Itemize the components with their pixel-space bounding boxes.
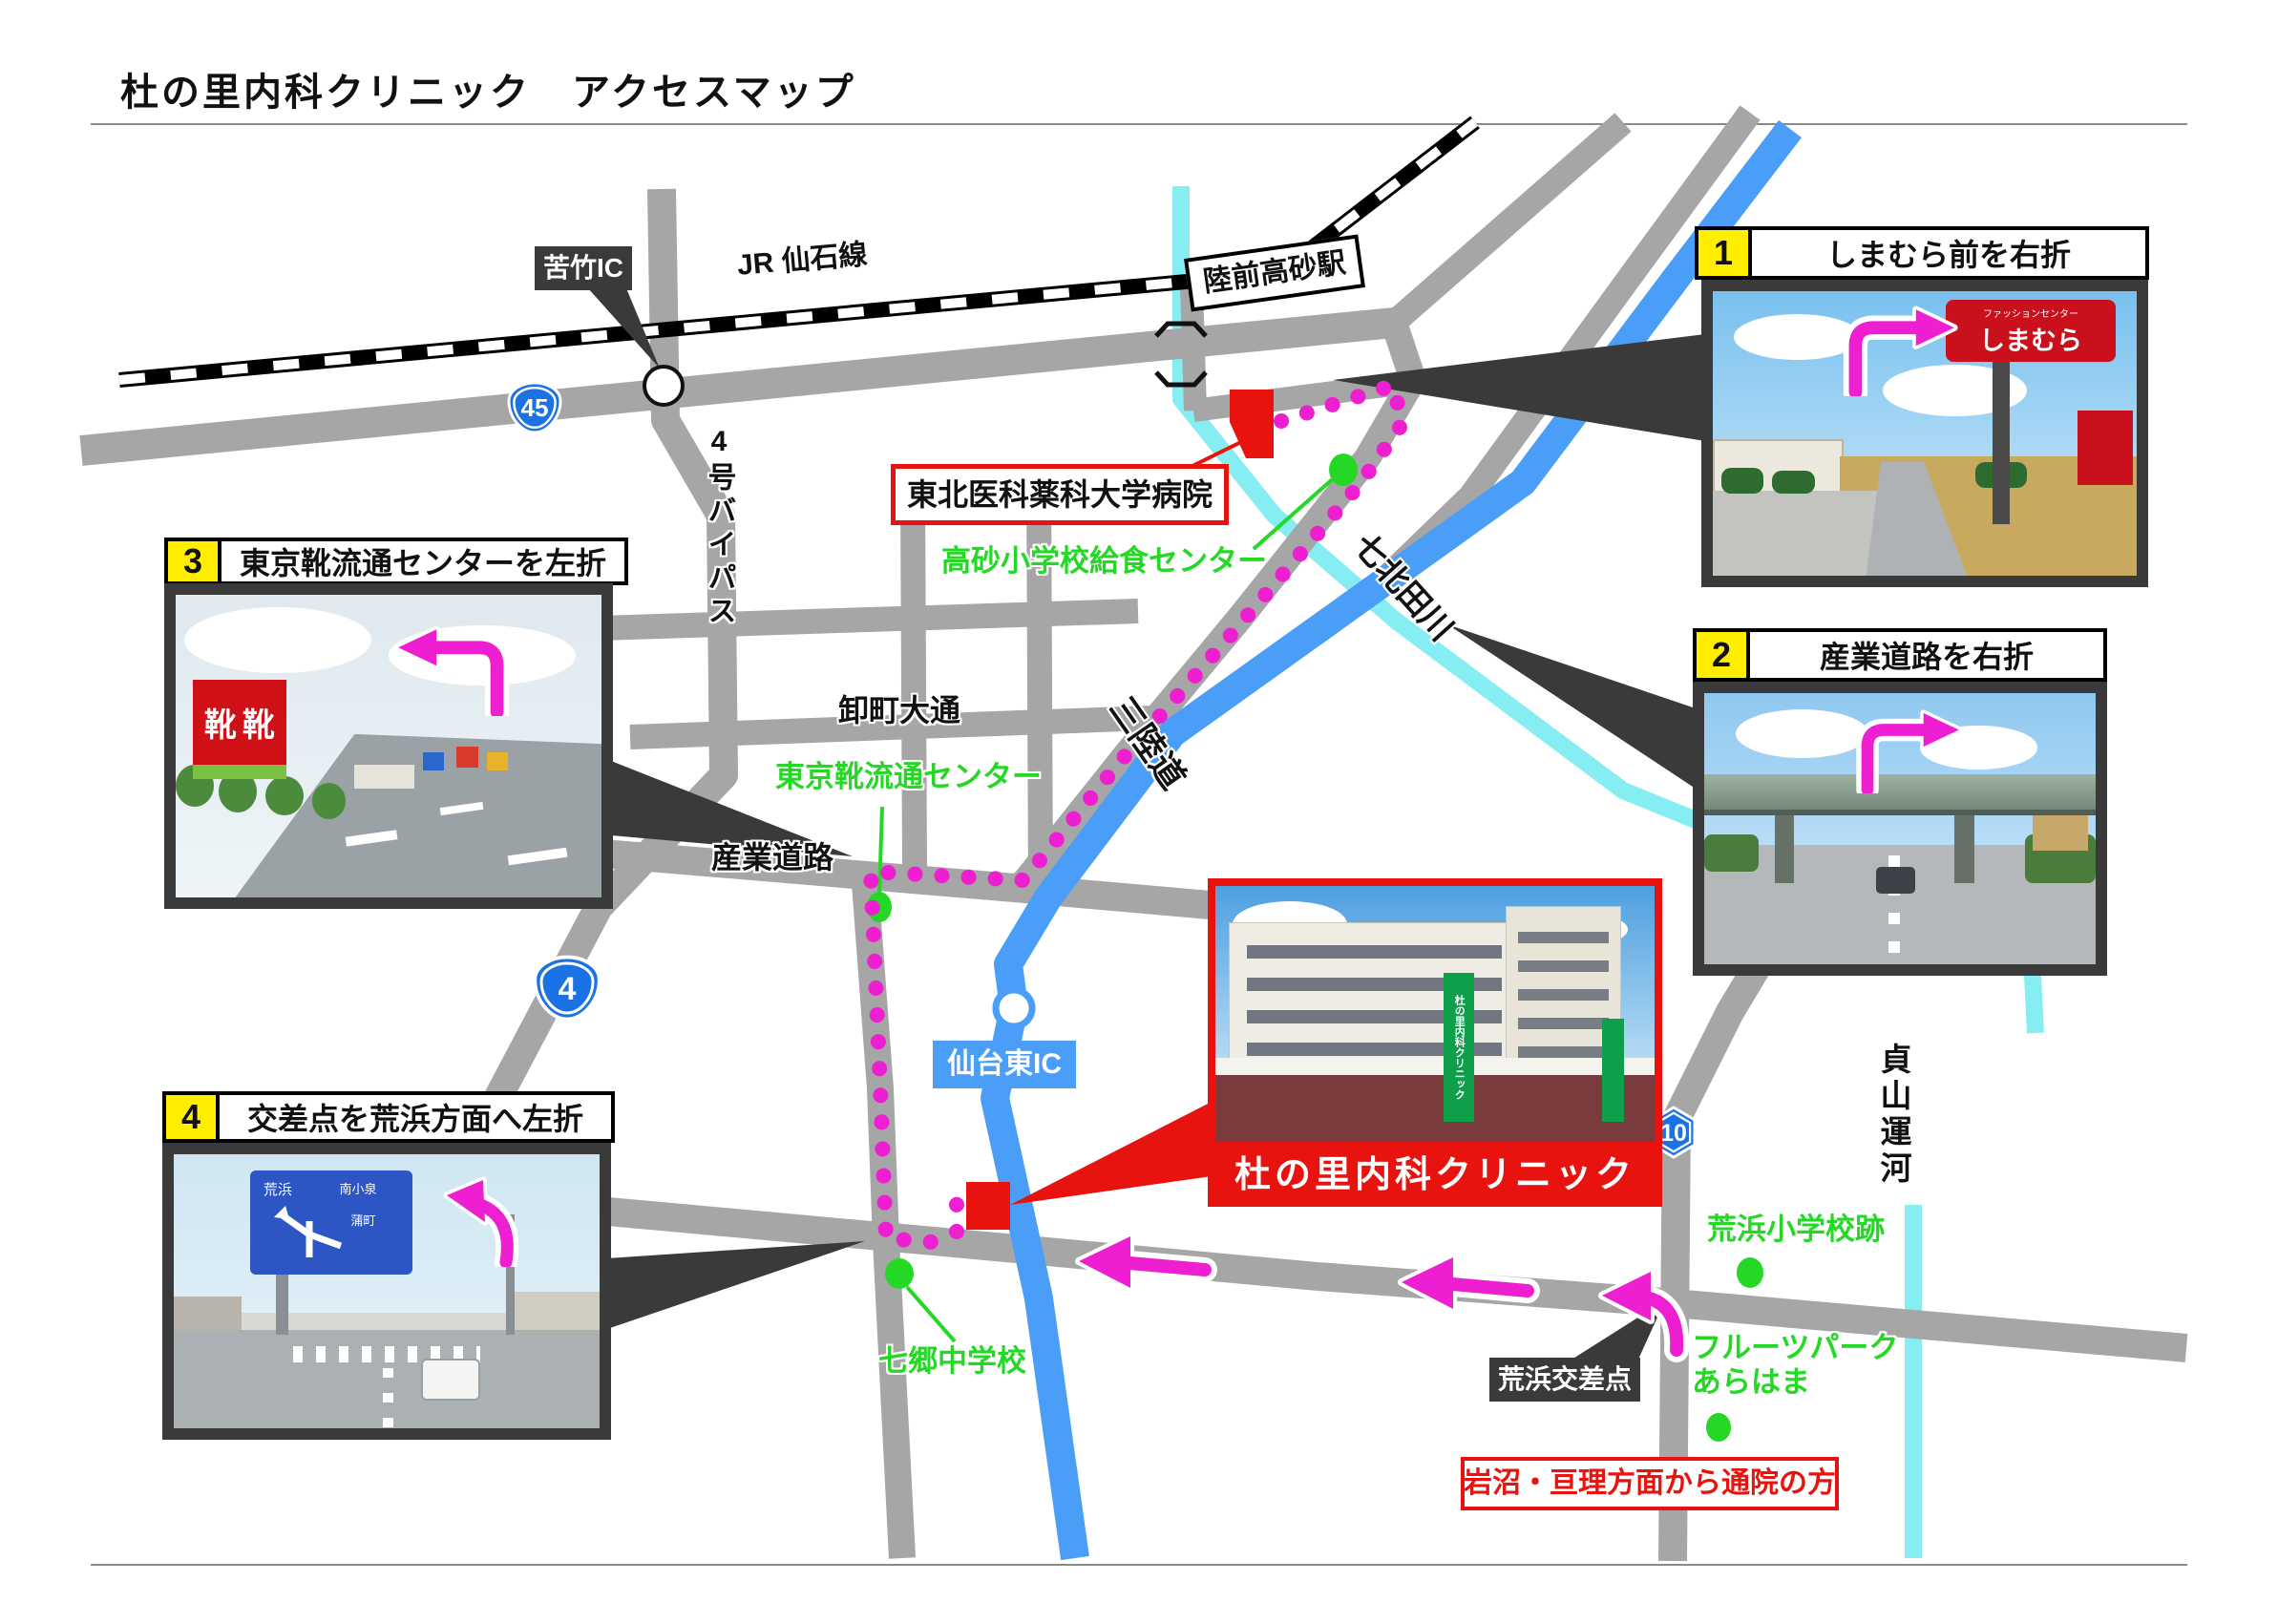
label-fruits-park: フルーツパーク あらはま	[1692, 1331, 1898, 1399]
turn-up-left-arrow	[412, 1176, 527, 1267]
label-sendai-higashi-ic: 仙台東IC	[933, 1041, 1076, 1088]
instruction-1: 1 しまむら前を右折	[1695, 226, 2149, 280]
instruction-4-number: 4	[166, 1095, 220, 1139]
lane-dashes	[383, 1368, 393, 1428]
store-facade	[2078, 411, 2133, 484]
kutake-ic-circle	[644, 367, 683, 405]
instruction-4-text: 交差点を荒浜方面へ左折	[220, 1095, 611, 1139]
label-arahama-crossing: 荒浜交差点	[1489, 1358, 1640, 1402]
turn-left-arrow	[389, 625, 513, 716]
hedge	[1772, 471, 1814, 494]
blue-guide-sign: 荒浜 南小泉 蒲町	[250, 1171, 411, 1275]
poi-arahama-elem-dot	[1737, 1257, 1763, 1288]
building	[354, 765, 413, 789]
label-shoe-center: 東京靴流通センター	[775, 760, 1042, 794]
road-grid-h1	[600, 611, 1138, 628]
sign-blue	[423, 752, 444, 770]
wedge-photo2	[1447, 624, 1707, 796]
bush	[265, 776, 304, 815]
guide-dest-kabanomachi: 蒲町	[350, 1211, 375, 1229]
road-bottom-arahama	[535, 1205, 2186, 1348]
poi-fruits-park-dot	[1706, 1413, 1731, 1442]
kutsu-cube-sign: 靴 靴	[193, 680, 286, 765]
cloud	[184, 607, 371, 674]
svg-text:4: 4	[559, 971, 577, 1007]
label-kyushoku-center: 高砂小学校給食センター	[941, 544, 1267, 579]
instruction-4: 4 交差点を荒浜方面へ左折	[162, 1091, 615, 1143]
label-iwanuma-note: 岩沼・亘理方面から通院の方	[1461, 1457, 1839, 1510]
route45-shield: 45	[509, 383, 560, 432]
hospital-marker	[1230, 390, 1274, 458]
clinic-name-banner: 杜の里内科クリニック	[1215, 1142, 1655, 1199]
guide-dest-arahama: 荒浜	[264, 1179, 292, 1199]
sign-yellow	[487, 752, 508, 770]
kutsu-char: 靴	[243, 699, 275, 746]
label-arahama-elem: 荒浜小学校跡	[1707, 1213, 1885, 1247]
turn-right-arrow	[1853, 709, 1968, 793]
instruction-1-number: 1	[1698, 230, 1752, 276]
wedge-clinic-label	[1010, 1102, 1212, 1205]
photo-1-shimamura: ファッションセンター しまむら	[1701, 280, 2148, 587]
poi-kyushoku-dot	[1329, 453, 1358, 486]
instruction-3-text: 東京靴流通センターを左折	[221, 541, 624, 581]
clinic-lower-wall	[1215, 1075, 1655, 1142]
label-kutake-ic: 苦竹IC	[535, 246, 632, 290]
svg-text:10: 10	[1660, 1120, 1687, 1147]
clinic-marker	[966, 1182, 1010, 1230]
sign-pole	[1993, 354, 2010, 525]
sendai-higashi-ic-circle	[996, 990, 1032, 1026]
road-grid-v2	[1039, 477, 1041, 893]
label-shichigo-jhs: 七郷中学校	[878, 1344, 1026, 1379]
instruction-2: 2 産業道路を右折	[1693, 628, 2107, 682]
road-hospital-front	[1193, 384, 1400, 411]
turn-right-arrow	[1840, 306, 1964, 396]
bush	[312, 783, 347, 819]
shimamura-sign: ファッションセンター しまむら	[1946, 300, 2116, 363]
clinic-photo: 杜の里内科クリニック	[1215, 886, 1655, 1142]
sign-red	[456, 747, 477, 768]
label-hospital: 東北医科薬科大学病院	[891, 464, 1229, 525]
poi-shichigo-dot	[885, 1258, 914, 1289]
label-sangyo-road: 産業道路	[711, 840, 833, 875]
guide-dest-minamikoizumi: 南小泉	[339, 1179, 376, 1197]
overpass-pier	[1954, 812, 1974, 883]
building-main	[1229, 922, 1521, 1072]
clinic-photo-block: 杜の里内科クリニック 杜の里内科クリニック	[1208, 878, 1662, 1207]
kutsu-char: 靴	[204, 699, 237, 746]
road-grid-v1	[913, 496, 915, 869]
instruction-2-number: 2	[1697, 632, 1750, 678]
fruits-park-line1: フルーツパーク	[1692, 1331, 1898, 1365]
cloud	[1736, 709, 1868, 758]
wedge-photo4	[607, 1241, 865, 1329]
instruction-2-text: 産業道路を右折	[1750, 632, 2103, 678]
shimamura-sign-main: しまむら	[1979, 320, 2082, 357]
van	[421, 1359, 480, 1401]
photo-4-crossing: 荒浜 南小泉 蒲町	[162, 1143, 611, 1440]
green-banner: 杜の里内科クリニック	[1444, 973, 1474, 1121]
instruction-3: 3 東京靴流通センターを左折	[164, 538, 628, 585]
car	[1876, 867, 1915, 894]
instruction-1-text: しまむら前を右折	[1752, 230, 2145, 276]
instruction-3-number: 3	[168, 541, 221, 581]
label-bypass4: 4号バイパス	[702, 426, 735, 629]
label-oroshimachi: 卸町大通	[838, 693, 960, 728]
kutsu-sign-base	[193, 765, 286, 780]
overpass-pier	[1775, 812, 1795, 883]
guide-sign-diagram	[266, 1202, 352, 1259]
sidewalk	[1713, 491, 1890, 576]
windows	[1518, 920, 1610, 1058]
road-clinic-vertical	[864, 871, 902, 1558]
shimamura-sign-top: ファッションセンター	[1983, 306, 2078, 320]
green-banner-text: 杜の里内科クリニック	[1451, 995, 1466, 1100]
photo-3-shoe-center: 靴 靴	[164, 583, 613, 909]
svg-text:45: 45	[521, 393, 549, 422]
label-teizan-canal: 貞山運河	[1875, 1043, 1911, 1188]
canopy	[1215, 1058, 1655, 1076]
green-banner-small	[1602, 1019, 1624, 1121]
hedge	[1721, 468, 1763, 494]
photo-2-sangyo	[1693, 682, 2107, 976]
hedge	[1704, 834, 1759, 873]
access-map-page: 杜の里内科クリニック アクセスマップ	[0, 0, 2278, 1624]
fruits-park-line2: あらはま	[1692, 1365, 1898, 1400]
